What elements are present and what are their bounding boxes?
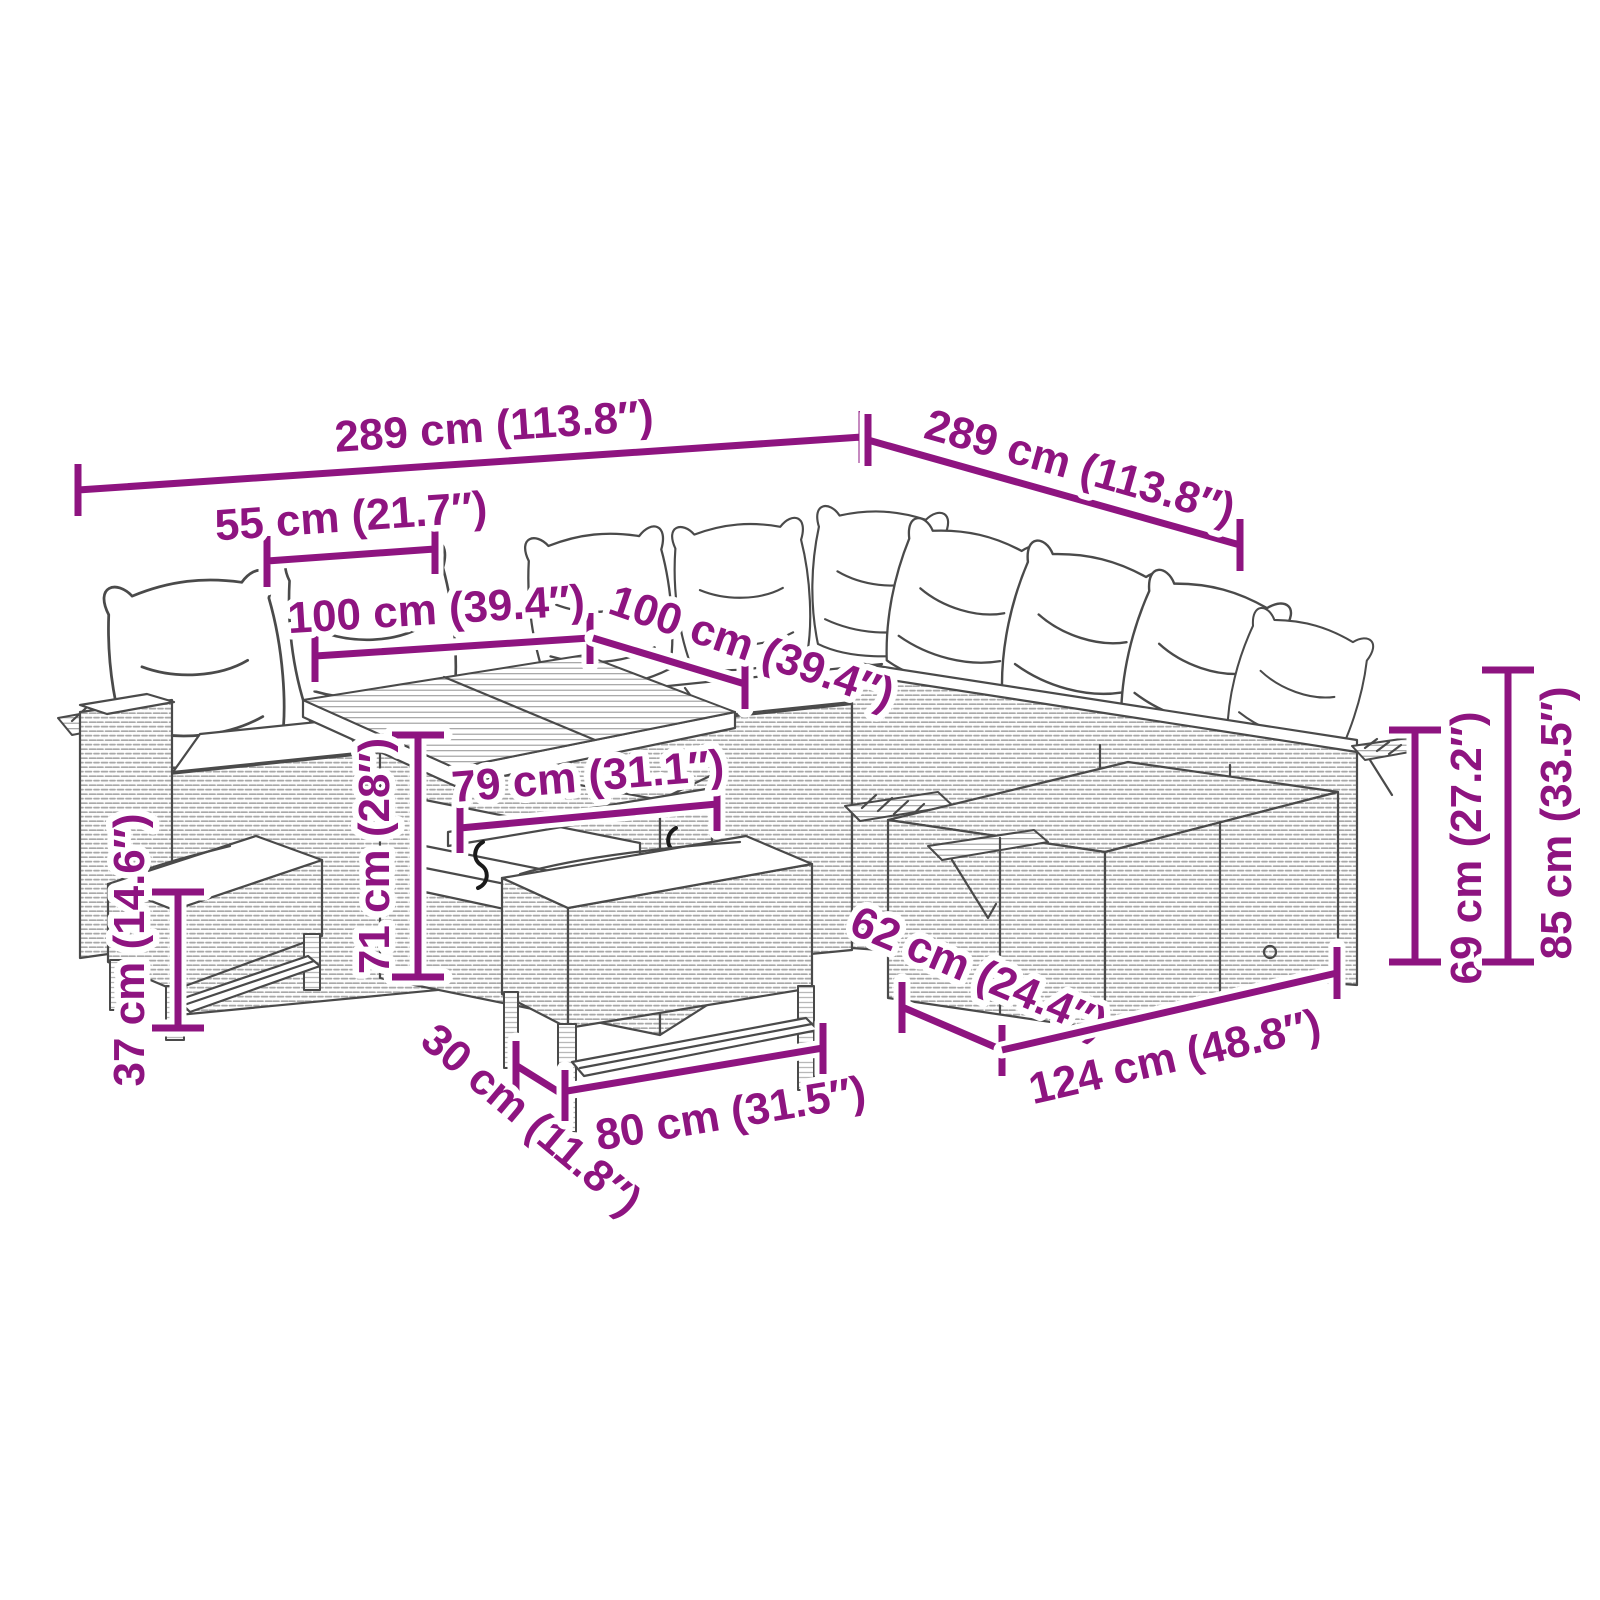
dim-label: 71 cm (28″): [350, 738, 399, 974]
dim-label: 85 cm (33.5″): [1532, 686, 1581, 959]
furniture-dimension-diagram: 289 cm (113.8″) 289 cm (113.8″) 55 cm (2…: [0, 0, 1600, 1600]
dim-label: 69 cm (27.2″): [1442, 711, 1491, 984]
dim-label: 37 cm (14.6″): [105, 813, 154, 1086]
